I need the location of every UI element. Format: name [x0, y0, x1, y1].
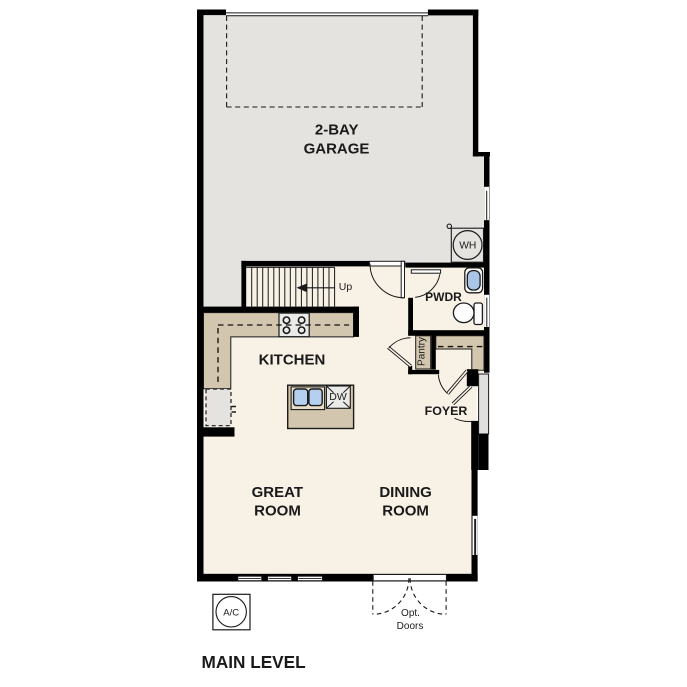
- svg-text:ROOM: ROOM: [382, 502, 429, 519]
- svg-text:FOYER: FOYER: [425, 404, 468, 418]
- svg-text:Up: Up: [339, 281, 353, 293]
- svg-text:GARAGE: GARAGE: [304, 140, 370, 157]
- svg-text:KITCHEN: KITCHEN: [259, 351, 326, 368]
- svg-text:DW: DW: [329, 391, 347, 403]
- svg-text:PWDR: PWDR: [425, 290, 462, 304]
- svg-text:2-BAY: 2-BAY: [315, 122, 359, 139]
- svg-text:ROOM: ROOM: [254, 502, 301, 519]
- svg-text:MAIN LEVEL: MAIN LEVEL: [202, 652, 306, 672]
- svg-text:GREAT: GREAT: [252, 484, 303, 501]
- svg-text:DINING: DINING: [379, 484, 432, 501]
- svg-text:A/C: A/C: [223, 607, 239, 618]
- svg-text:Opt.: Opt.: [401, 608, 420, 619]
- svg-text:Pantry: Pantry: [416, 337, 427, 366]
- svg-text:WH: WH: [459, 240, 476, 251]
- svg-text:Doors: Doors: [397, 621, 424, 632]
